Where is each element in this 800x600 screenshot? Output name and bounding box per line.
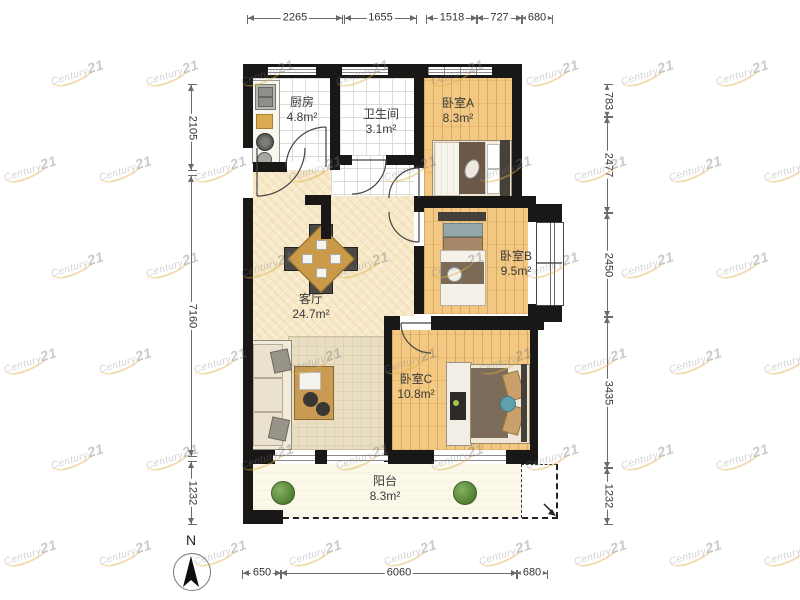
- dim-left-3: 1232: [191, 462, 192, 524]
- balcony-dashed-line: [556, 464, 558, 518]
- brand-watermark: Century21: [713, 248, 770, 279]
- dim-top-5: 680: [522, 18, 552, 19]
- bed-b-pillow: [443, 237, 483, 251]
- dim-bottom-2: 6060: [281, 573, 517, 574]
- brand-watermark: Century21: [666, 152, 723, 183]
- wall: [243, 450, 275, 464]
- brand-watermark: Century21: [523, 56, 580, 87]
- brand-watermark: Century21: [191, 344, 248, 375]
- wall: [243, 64, 253, 148]
- balcony-corner-arrowhead: [548, 509, 556, 516]
- brand-watermark: Century21: [571, 344, 628, 375]
- wall: [384, 328, 392, 462]
- placemat: [316, 240, 327, 250]
- brand-watermark: Century21: [571, 152, 628, 183]
- room-label-bedroom-a: 卧室A8.3m²: [442, 96, 474, 126]
- tv: [450, 392, 466, 420]
- bed-a-pillow: [487, 169, 500, 194]
- room-label-balcony: 阳台8.3m²: [370, 474, 401, 504]
- brand-watermark: Century21: [48, 440, 105, 471]
- bathroom-window: [342, 67, 388, 75]
- door-opening: [400, 316, 431, 330]
- wall: [528, 204, 562, 222]
- wall: [414, 64, 424, 168]
- brand-watermark: Century21: [713, 56, 770, 87]
- dim-bottom-3: 680: [517, 573, 547, 574]
- tv-light: [453, 400, 459, 406]
- balcony-sliding-door: [327, 455, 388, 461]
- brand-watermark: Century21: [618, 440, 675, 471]
- placemat: [316, 268, 327, 278]
- room-label-bedroom-c: 卧室C10.8m²: [397, 372, 434, 402]
- bed-a-pillow: [487, 144, 500, 169]
- brand-watermark: Century21: [48, 56, 105, 87]
- plant: [271, 481, 295, 505]
- dim-top-4: 727: [477, 18, 522, 19]
- brand-watermark: Century21: [191, 152, 248, 183]
- wall: [414, 208, 424, 212]
- balcony-dashed-line: [283, 517, 558, 519]
- dim-bottom-1: 650: [243, 573, 281, 574]
- pouf: [303, 392, 318, 407]
- bedroom-c-window: [434, 455, 506, 461]
- bed-a-sheet: [434, 142, 460, 196]
- wall: [388, 450, 434, 464]
- dim-right-4: 3435: [607, 317, 608, 468]
- balcony-corner-arrow: [544, 504, 553, 513]
- brand-watermark: Century21: [286, 536, 343, 567]
- dim-right-5: 1232: [607, 468, 608, 524]
- brand-watermark: Century21: [761, 344, 800, 375]
- wall: [243, 510, 283, 524]
- floorplan-canvas: N 厨房4.8m² 卫生间3.1m² 卧室A8.3m² 卧室B9.5m² 卧室C…: [0, 0, 800, 600]
- balcony-dashed-line: [521, 464, 522, 518]
- brand-watermark: Century21: [143, 56, 200, 87]
- brand-watermark: Century21: [96, 536, 153, 567]
- dim-left-1: 2105: [191, 85, 192, 170]
- dim-right-1: 783: [607, 85, 608, 117]
- brand-watermark: Century21: [1, 152, 58, 183]
- sink-basin: [258, 87, 273, 97]
- dim-left-2: 7160: [191, 176, 192, 456]
- brand-watermark: Century21: [143, 248, 200, 279]
- brand-watermark: Century21: [618, 56, 675, 87]
- sink-basin: [258, 97, 273, 107]
- wall: [338, 155, 352, 165]
- wall: [512, 64, 522, 204]
- wall: [253, 162, 287, 172]
- wall: [414, 246, 424, 314]
- wall: [315, 450, 327, 464]
- brand-watermark: Century21: [48, 248, 105, 279]
- brand-watermark: Century21: [571, 536, 628, 567]
- dim-top-3: 1518: [427, 18, 477, 19]
- brand-watermark: Century21: [476, 536, 533, 567]
- pouf: [316, 402, 330, 416]
- coffee-table-tray: [299, 372, 321, 390]
- bay-window: [536, 222, 564, 306]
- brand-watermark: Century21: [1, 344, 58, 375]
- kitchen-window: [268, 67, 316, 75]
- bedroom-a-window: [428, 67, 492, 75]
- dim-top-1: 2265: [248, 18, 342, 19]
- wall: [414, 196, 536, 208]
- sofa-cushion: [253, 378, 283, 412]
- brand-watermark: Century21: [96, 152, 153, 183]
- dim-top-2: 1655: [345, 18, 416, 19]
- wall: [243, 198, 253, 524]
- bed-a-headboard: [500, 140, 510, 196]
- brand-watermark: Century21: [666, 344, 723, 375]
- brand-watermark: Century21: [381, 536, 438, 567]
- bed-b-headboard: [438, 212, 486, 221]
- room-label-bedroom-b: 卧室B9.5m²: [500, 249, 532, 279]
- room-label-kitchen: 厨房4.8m²: [287, 95, 318, 125]
- brand-watermark: Century21: [761, 536, 800, 567]
- brand-watermark: Century21: [713, 440, 770, 471]
- brand-watermark: Century21: [96, 344, 153, 375]
- brand-watermark: Century21: [1, 536, 58, 567]
- dim-right-3: 2450: [607, 213, 608, 317]
- brand-watermark: Century21: [618, 248, 675, 279]
- room-label-living: 客厅24.7m²: [292, 292, 329, 322]
- room-label-bathroom: 卫生间3.1m²: [363, 107, 399, 137]
- plant: [453, 481, 477, 505]
- compass-circle: [173, 553, 211, 591]
- bed-b-pillow: [443, 223, 483, 237]
- wall: [530, 322, 538, 464]
- bed-c-round-pillow: [500, 396, 516, 412]
- stove-burner: [256, 133, 274, 151]
- dim-right-2: 2477: [607, 117, 608, 213]
- cutting-board: [256, 114, 273, 129]
- bed-c-headboard: [521, 364, 527, 442]
- brand-watermark: Century21: [666, 536, 723, 567]
- wall: [321, 195, 331, 239]
- balcony-sliding-door: [273, 455, 315, 461]
- balcony-dashed-line: [521, 464, 557, 465]
- brand-watermark: Century21: [761, 152, 800, 183]
- bed-b-accent-plate: [447, 267, 462, 282]
- wall: [506, 450, 538, 464]
- compass-north-label: N: [186, 532, 196, 548]
- placemat: [302, 254, 313, 264]
- wall: [386, 155, 414, 165]
- placemat: [330, 254, 341, 264]
